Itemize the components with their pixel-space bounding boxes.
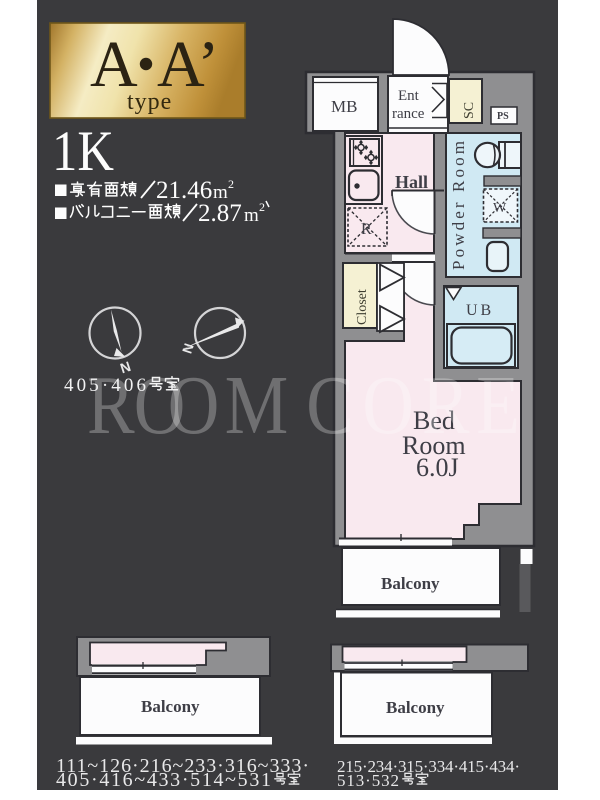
svg-text:Balcony: Balcony — [141, 697, 200, 716]
svg-text:1K: 1K — [52, 120, 114, 183]
svg-text:O: O — [168, 359, 220, 452]
svg-text:2: 2 — [228, 177, 234, 191]
svg-text:UB: UB — [466, 302, 494, 319]
svg-text:R: R — [361, 221, 372, 238]
svg-text:2.87: 2.87 — [198, 200, 242, 227]
svg-text:Balcony: Balcony — [386, 698, 445, 717]
svg-text:PS: PS — [497, 111, 509, 122]
svg-text:Closet: Closet — [355, 289, 370, 325]
svg-text:513·532: 513·532 — [337, 771, 399, 790]
svg-text:C: C — [306, 359, 354, 452]
svg-text:E: E — [476, 359, 520, 452]
svg-text:2: 2 — [259, 200, 265, 214]
svg-text:type: type — [127, 89, 172, 115]
svg-text:Powder Room: Powder Room — [449, 141, 468, 270]
svg-text:6.0J: 6.0J — [416, 453, 459, 482]
svg-text:MB: MB — [331, 97, 357, 116]
svg-text:SC: SC — [462, 102, 477, 119]
svg-text:Hall: Hall — [395, 172, 428, 192]
svg-text:R: R — [87, 359, 135, 452]
svg-text:W: W — [493, 201, 507, 216]
svg-text:405·416~433·514~531: 405·416~433·514~531 — [56, 769, 271, 791]
svg-text:M: M — [225, 359, 288, 452]
svg-text:O: O — [362, 359, 414, 452]
svg-text:m: m — [244, 205, 259, 226]
svg-text:Ent: Ent — [398, 88, 420, 104]
svg-text:R: R — [422, 359, 470, 452]
svg-text:Balcony: Balcony — [381, 574, 440, 593]
svg-text:rance: rance — [392, 106, 425, 122]
